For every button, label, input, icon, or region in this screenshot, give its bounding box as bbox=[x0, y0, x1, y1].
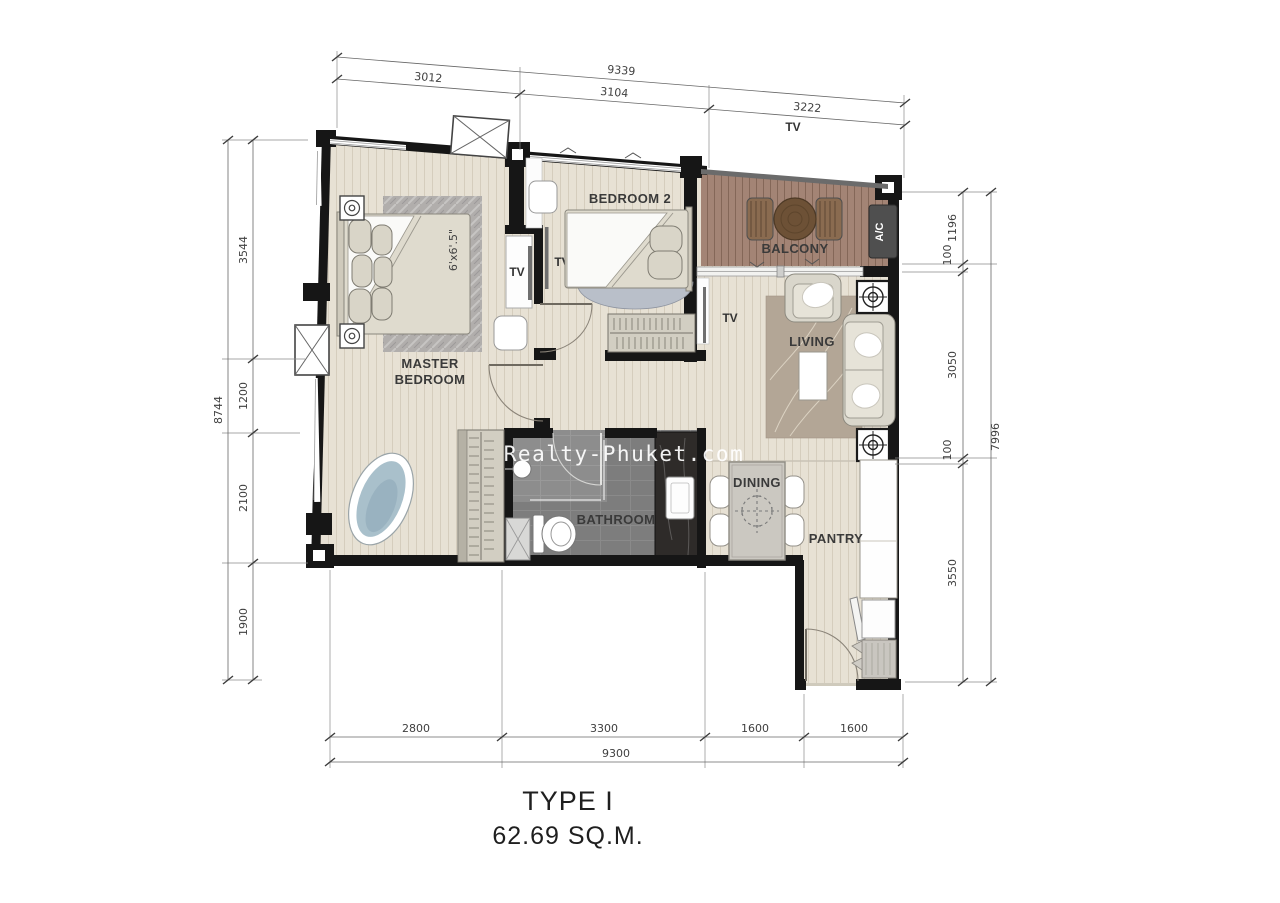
dim-left-seg4: 1900 bbox=[237, 608, 250, 636]
speaker-icon bbox=[340, 196, 364, 220]
dim-bottom-seg4: 1600 bbox=[840, 722, 868, 735]
balcony: BALCONY A/C bbox=[747, 198, 897, 258]
master-wardrobe bbox=[458, 430, 504, 562]
sofa bbox=[843, 314, 895, 426]
dim-right-total: 7996 bbox=[989, 423, 1002, 451]
pantry-label: PANTRY bbox=[809, 531, 863, 546]
bedroom2-chair bbox=[648, 226, 682, 279]
dim-bottom-seg2: 3300 bbox=[590, 722, 618, 735]
armchair bbox=[785, 274, 841, 322]
dim-bottom-seg1: 2800 bbox=[402, 722, 430, 735]
chair bbox=[494, 316, 527, 350]
dim-right-seg3: 3050 bbox=[946, 351, 959, 379]
dim-bottom-total: 9300 bbox=[602, 747, 630, 760]
master-bedroom-label-2: BEDROOM bbox=[395, 372, 466, 387]
ceiling-light-icon bbox=[857, 281, 889, 313]
dim-left-seg1: 3544 bbox=[237, 236, 250, 264]
bathroom-label: BATHROOM bbox=[577, 512, 656, 527]
floor-plan-page: 6'x6'.5" MASTER BEDROOM bbox=[0, 0, 1280, 903]
dim-right-seg4: 100 bbox=[941, 440, 954, 461]
floor-plan-drawing: 6'x6'.5" MASTER BEDROOM bbox=[0, 0, 1280, 903]
tv-label-living: TV bbox=[722, 311, 737, 325]
stool bbox=[529, 181, 557, 213]
master-pillows bbox=[349, 219, 392, 323]
tv-icon bbox=[545, 227, 549, 289]
plan-title: TYPE I 62.69 SQ.M. bbox=[492, 786, 643, 850]
dim-right-seg1: 1196 bbox=[946, 214, 959, 242]
cabinet bbox=[862, 600, 895, 638]
bed-size-label: 6'x6'.5" bbox=[447, 229, 460, 271]
plan-area-label: 62.69 SQ.M. bbox=[492, 822, 643, 850]
dim-top-seg3: 3222 bbox=[793, 100, 822, 115]
master-headboard bbox=[337, 212, 344, 336]
dim-top-total: 9339 bbox=[607, 63, 636, 78]
bedroom2-label: BEDROOM 2 bbox=[589, 191, 671, 206]
shower-drain-icon bbox=[506, 518, 530, 560]
dim-top-seg1: 3012 bbox=[414, 70, 443, 85]
dim-right-seg2: 100 bbox=[941, 245, 954, 266]
ceiling-light-icon bbox=[857, 429, 889, 461]
living-label: LIVING bbox=[789, 334, 835, 349]
ac-label: A/C bbox=[874, 222, 886, 241]
speaker-icon bbox=[340, 324, 364, 348]
balcony-table bbox=[774, 198, 816, 240]
vent-box-left-icon bbox=[295, 325, 329, 375]
dim-top-seg2: 3104 bbox=[600, 85, 629, 100]
dim-left-seg2: 1200 bbox=[237, 382, 250, 410]
tv-icon bbox=[703, 287, 706, 343]
watermark: Realty-Phuket.com bbox=[504, 442, 744, 466]
dimension-left: 8744 3544 1200 2100 1900 bbox=[212, 136, 308, 684]
tv-label-master: TV bbox=[509, 265, 524, 279]
balcony-label: BALCONY bbox=[761, 241, 828, 256]
balcony-chair bbox=[816, 198, 842, 240]
tv-icon bbox=[528, 246, 532, 300]
plan-type-label: TYPE I bbox=[522, 786, 614, 816]
toilet bbox=[533, 515, 576, 553]
vent-box-top-icon bbox=[451, 116, 510, 158]
dimension-right: 1196 100 3050 100 3550 7996 bbox=[895, 188, 1002, 686]
coffee-table bbox=[799, 352, 827, 400]
bedroom2-wardrobe bbox=[608, 314, 695, 352]
tv-label-top: TV bbox=[785, 120, 800, 134]
dim-left-seg3: 2100 bbox=[237, 484, 250, 512]
master-bedroom-label-1: MASTER bbox=[401, 356, 458, 371]
dining-label: DINING bbox=[733, 475, 781, 490]
dim-left-total: 8744 bbox=[212, 396, 225, 424]
dim-right-seg5: 3550 bbox=[946, 559, 959, 587]
ac-unit: A/C bbox=[869, 205, 897, 258]
balcony-chair bbox=[747, 198, 773, 240]
dim-bottom-seg3: 1600 bbox=[741, 722, 769, 735]
pantry-counter bbox=[860, 460, 897, 598]
